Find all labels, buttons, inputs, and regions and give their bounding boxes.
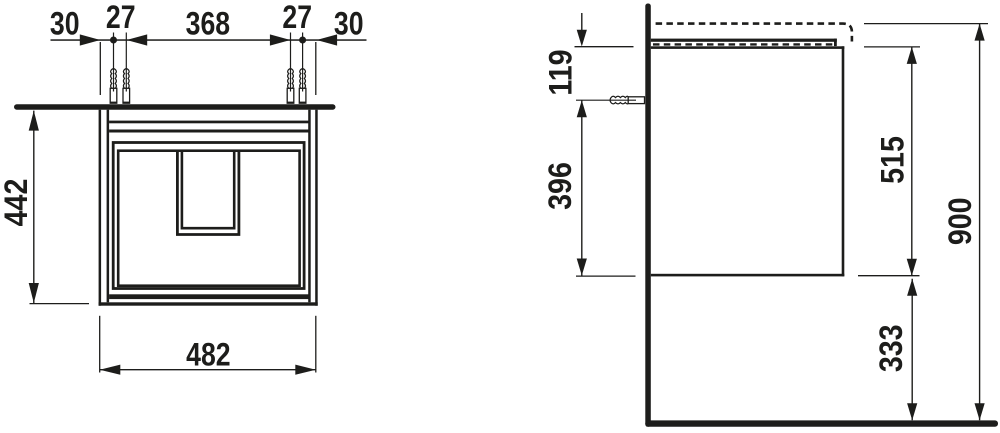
svg-text:30: 30 xyxy=(334,6,364,42)
svg-text:119: 119 xyxy=(543,49,579,95)
svg-text:27: 27 xyxy=(282,0,312,36)
svg-text:515: 515 xyxy=(875,136,911,184)
svg-text:333: 333 xyxy=(873,324,909,372)
svg-text:27: 27 xyxy=(106,0,136,36)
svg-text:396: 396 xyxy=(542,162,578,210)
svg-text:482: 482 xyxy=(186,337,230,373)
svg-text:900: 900 xyxy=(942,197,978,245)
svg-text:442: 442 xyxy=(0,179,34,227)
svg-text:30: 30 xyxy=(50,6,80,42)
svg-text:368: 368 xyxy=(186,6,230,42)
